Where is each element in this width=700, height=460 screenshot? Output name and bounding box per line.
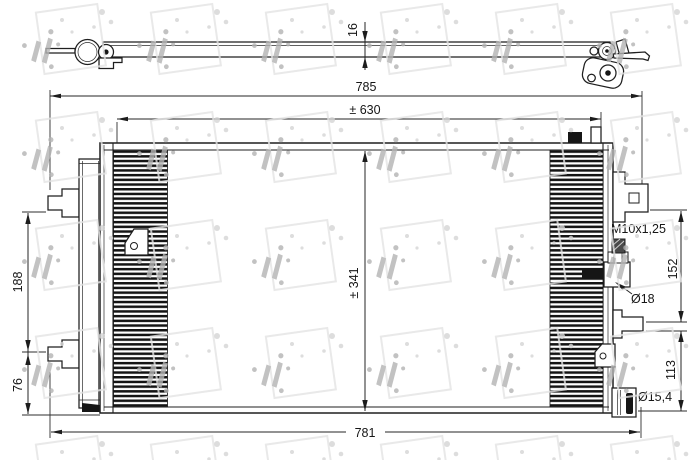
right-hook-arm [613, 52, 650, 61]
inlet-pipe [46, 49, 75, 54]
dim-right-column: 152 113 [638, 210, 687, 411]
side-view: 16 [46, 22, 650, 90]
core-fins-left [114, 150, 168, 407]
valve-collar [608, 252, 628, 263]
right-upper-bracket-hole [629, 193, 639, 203]
left-lower-lug [99, 58, 122, 69]
left-lower-bracket [48, 340, 79, 368]
top-mounting-pin [568, 132, 582, 143]
technical-drawing: 16 785 ± 630 [0, 0, 700, 460]
bottom-fitting-slot [626, 393, 633, 414]
dim-overall-width-top-label: 785 [356, 80, 377, 94]
dim-left-bottom-label: 76 [11, 378, 25, 392]
drawing-canvas: 16 785 ± 630 [0, 0, 700, 460]
top-connection-stub [591, 127, 601, 143]
callout-valve-diameter: Ø18 [615, 282, 655, 306]
pipe-diameter-label: Ø15,4 [638, 390, 672, 404]
valve-diameter-label: Ø18 [631, 292, 655, 306]
bottom-pipe-fitting [612, 388, 636, 417]
dim-right-upper-label: 152 [666, 259, 680, 280]
dim-connection-span: ± 630 [117, 103, 601, 143]
thread-spec-label: M10x1,25 [611, 222, 666, 236]
right-core-tab-hole [600, 353, 606, 359]
left-core-tab-hole [131, 243, 138, 250]
left-upper-bracket [48, 189, 79, 217]
receiver-drier [79, 159, 102, 412]
dim-right-lower-label: 113 [664, 360, 678, 380]
pipe-ring-outer [75, 40, 100, 65]
dim-side-thickness-label: 16 [346, 23, 360, 37]
right-middle-bracket [613, 310, 643, 338]
side-view-body [103, 42, 610, 57]
dim-core-height-label: ± 341 [347, 267, 361, 298]
valve-pipe [582, 270, 606, 279]
dim-connection-span-label: ± 630 [349, 103, 380, 117]
dim-overall-width-bottom-label: 781 [355, 426, 376, 440]
dim-left-bracket-span-label: 188 [11, 272, 25, 293]
